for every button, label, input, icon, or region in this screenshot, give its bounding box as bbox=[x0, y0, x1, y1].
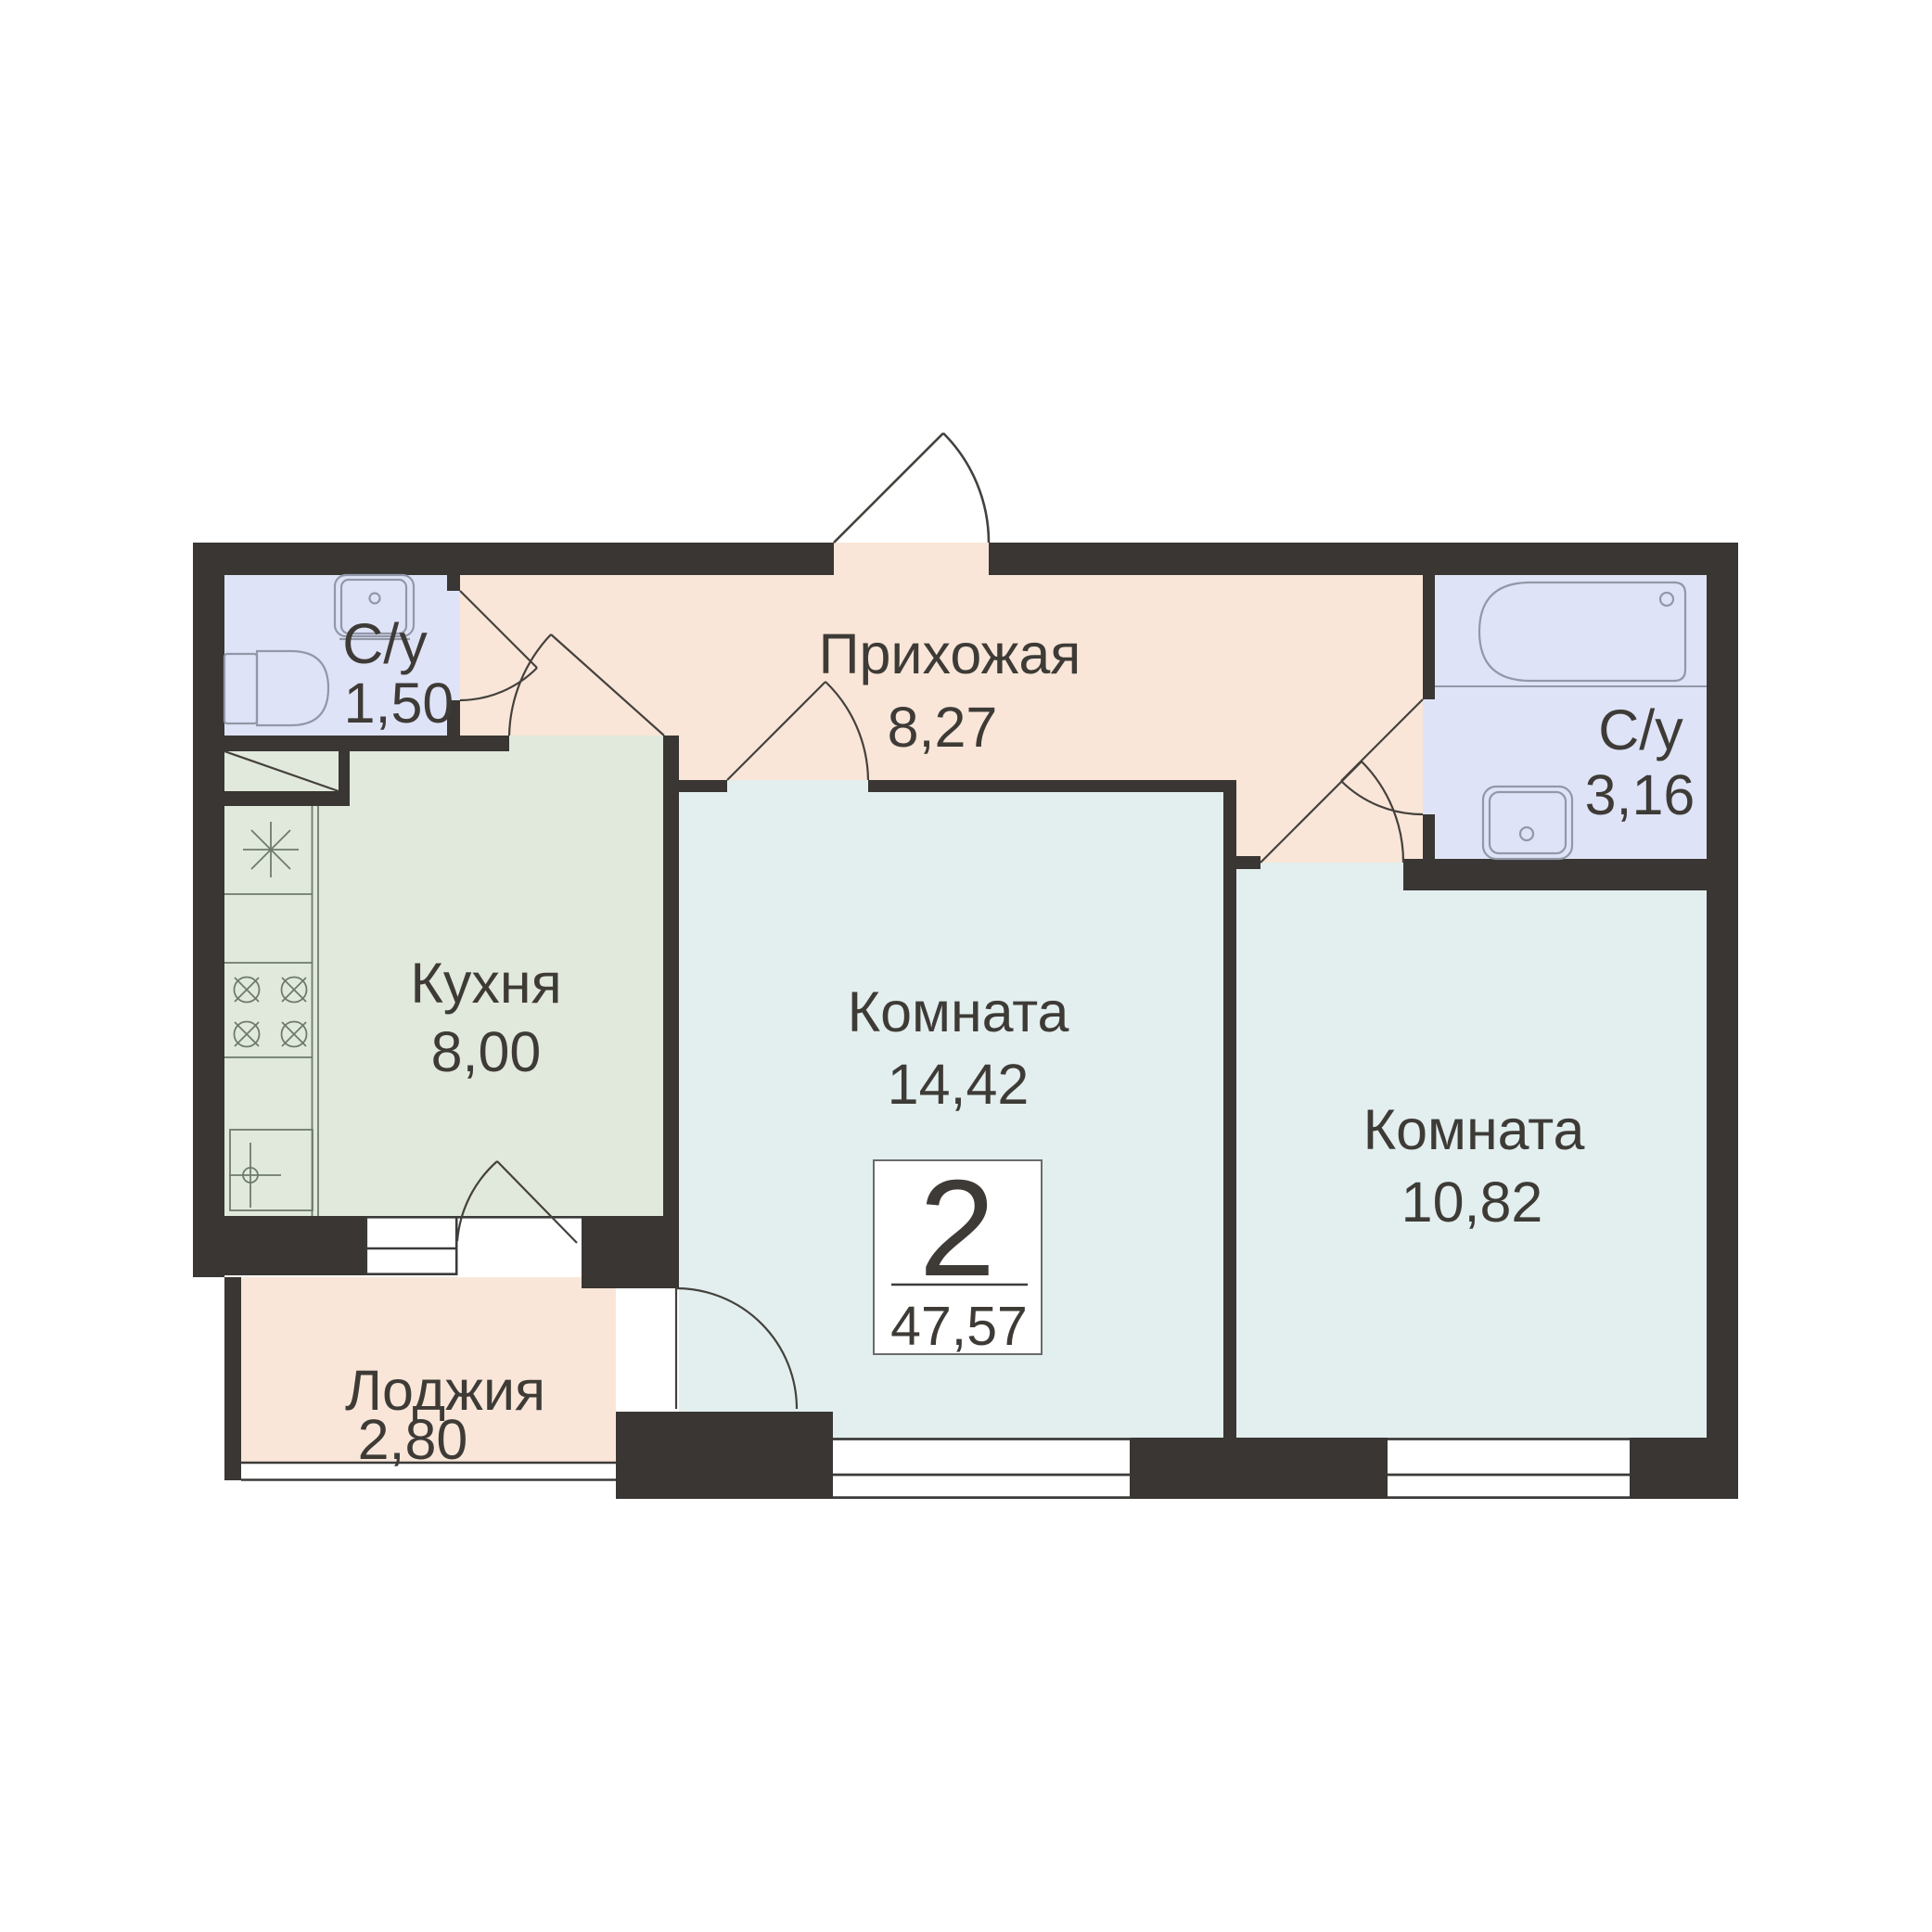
svg-text:Прихожая: Прихожая bbox=[819, 622, 1081, 685]
svg-text:С/у: С/у bbox=[1598, 698, 1683, 761]
svg-text:Комната: Комната bbox=[1363, 1098, 1585, 1161]
svg-text:3,16: 3,16 bbox=[1585, 763, 1695, 826]
svg-text:10,82: 10,82 bbox=[1401, 1171, 1543, 1234]
svg-text:2,80: 2,80 bbox=[358, 1408, 468, 1471]
svg-text:14,42: 14,42 bbox=[888, 1053, 1030, 1116]
svg-text:Кухня: Кухня bbox=[410, 952, 561, 1015]
svg-text:1,50: 1,50 bbox=[344, 672, 454, 735]
svg-text:8,00: 8,00 bbox=[431, 1020, 542, 1083]
svg-text:8,27: 8,27 bbox=[888, 696, 998, 759]
svg-text:47,57: 47,57 bbox=[890, 1296, 1028, 1357]
svg-text:Комната: Комната bbox=[848, 980, 1069, 1043]
svg-text:С/у: С/у bbox=[342, 612, 428, 675]
svg-text:2: 2 bbox=[919, 1152, 995, 1305]
